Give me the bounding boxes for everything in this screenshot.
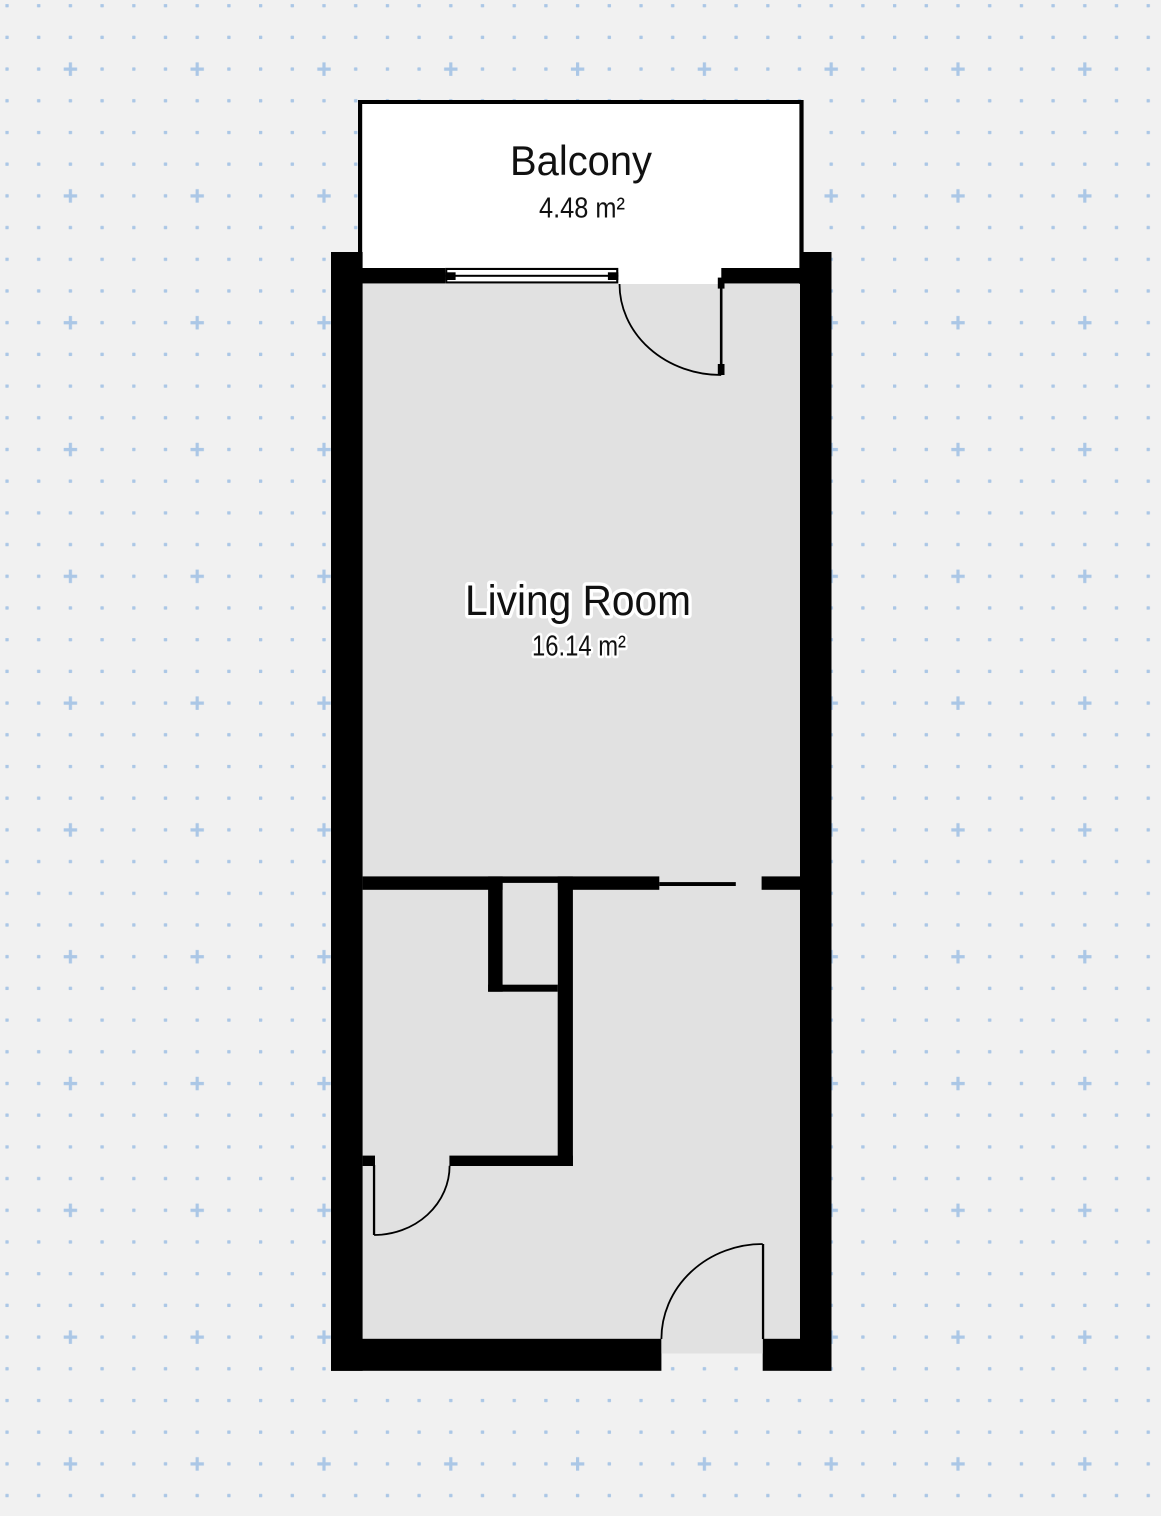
svg-text:16.14 m²: 16.14 m² — [532, 630, 626, 662]
svg-text:4.48 m²: 4.48 m² — [539, 193, 625, 225]
svg-text:Balcony: Balcony — [510, 137, 652, 184]
svg-text:Living Room: Living Room — [465, 577, 691, 625]
